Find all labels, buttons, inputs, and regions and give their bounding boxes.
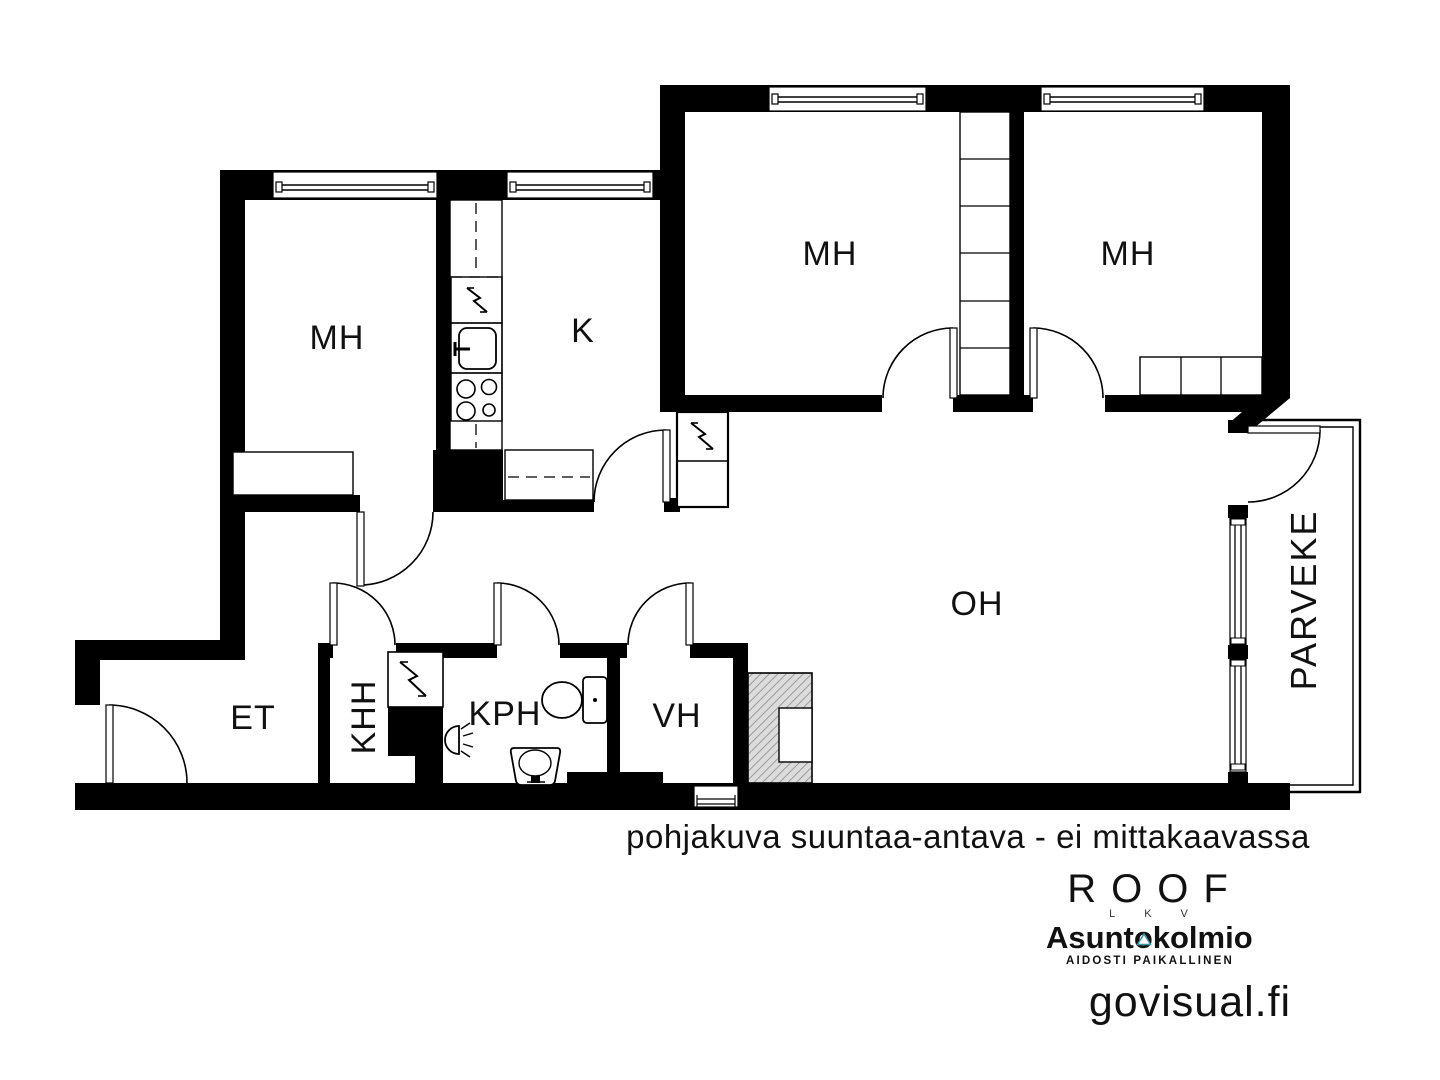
electrical-panel-kitchen [677, 412, 728, 507]
room-label-vh: VH [652, 697, 701, 735]
room-label-kitchen: K [571, 312, 595, 350]
asuntokolmio-logo-text: Asuntokolmio [1046, 920, 1253, 955]
room-label-mh-middle: MH [803, 235, 858, 273]
disclaimer-text: pohjakuva suuntaa-antava - ei mittakaava… [626, 818, 1310, 855]
room-label-kph: KPH [469, 695, 542, 733]
roof-logo-text: ROOF [1067, 867, 1243, 911]
room-label-mh-right: MH [1101, 235, 1156, 273]
credit-text: govisual.fi [1089, 978, 1291, 1026]
floorplan-drawing: MH K MH MH OH ET KHH KPH VH PARVEKE pohj… [0, 0, 1440, 1080]
room-label-et: ET [230, 699, 275, 737]
fireplace-block [748, 673, 812, 783]
window-mh-middle [769, 87, 926, 111]
canvas-background [0, 0, 1440, 1080]
roof-lkv-text: LKV [1109, 908, 1217, 920]
room-label-parveke: PARVEKE [1283, 510, 1324, 691]
closet-mh-top-left [233, 452, 353, 495]
closet-mh-right [1140, 357, 1262, 395]
window-oh-balcony-lower [1230, 659, 1246, 772]
window-mh-top-left [273, 172, 437, 198]
window-oh-balcony-upper [1230, 518, 1246, 645]
kitchen-lower-counter [505, 450, 593, 500]
floorplan-page: MH K MH MH OH ET KHH KPH VH PARVEKE pohj… [0, 0, 1440, 1080]
washbasin-icon [511, 748, 560, 785]
room-label-khh: KHH [345, 680, 383, 755]
electrical-panel-khh [388, 652, 443, 707]
window-mh-right [1041, 87, 1204, 111]
vent-window [694, 786, 738, 807]
wardrobe-strip [960, 112, 1010, 395]
room-label-oh: OH [951, 585, 1004, 623]
window-kitchen [507, 172, 653, 198]
room-label-mh-top-left: MH [310, 319, 365, 357]
kitchen-counter [450, 200, 502, 450]
brand-tagline-text: AIDOSTI PAIKALLINEN [1066, 955, 1234, 967]
